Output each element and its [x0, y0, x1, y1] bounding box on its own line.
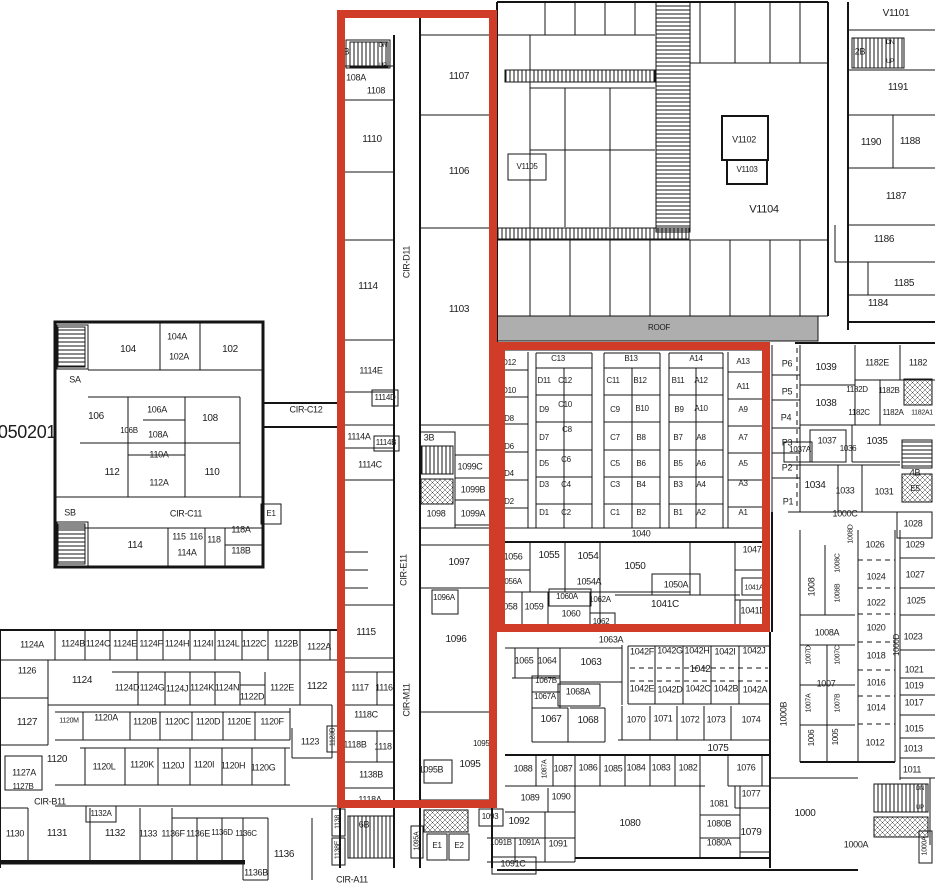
room-label-cir-c11: CIR-C11 — [170, 510, 202, 519]
room-label-1122c: 1122C — [242, 640, 266, 649]
room-label-1138e: 1138E — [335, 841, 342, 859]
room-label-c7: C7 — [610, 434, 620, 442]
room-label-1136: 1136 — [274, 850, 294, 860]
room-label-1007d: 1007D — [806, 645, 813, 664]
room-label-1035: 1035 — [866, 437, 887, 447]
room-label-c1: C1 — [610, 509, 620, 517]
room-label-a5: A5 — [738, 460, 747, 468]
room-label-108a: 108A — [148, 431, 168, 440]
room-label-1124d: 1124D — [115, 684, 139, 693]
room-label-1041c: 1041C — [651, 600, 679, 610]
room-label-1091: 1091 — [549, 840, 568, 849]
room-label-1124: 1124 — [72, 676, 92, 686]
room-label-b13: B13 — [624, 355, 637, 363]
room-label-1095b: 1095B — [419, 766, 444, 775]
room-label-b8: B8 — [636, 434, 645, 442]
room-label-1110: 1110 — [362, 135, 382, 145]
room-label-1132a: 1132A — [90, 810, 111, 818]
room-label-1015: 1015 — [905, 725, 924, 734]
room-label-1034: 1034 — [804, 481, 825, 491]
room-label-1114b: 1114B — [376, 439, 396, 447]
room-label-104a: 104A — [167, 333, 187, 342]
room-label-1191: 1191 — [888, 83, 908, 93]
room-label-1031: 1031 — [875, 488, 894, 497]
room-labels-layer: 050201ROOFSA104104A102A102106106A106B108… — [0, 0, 935, 883]
room-label-1118a: 1118A — [358, 796, 381, 805]
room-label-1005: 1005 — [832, 729, 840, 746]
room-label-b2: B2 — [636, 509, 645, 517]
room-label-roof: ROOF — [648, 324, 670, 332]
room-label-1186: 1186 — [874, 235, 894, 245]
room-label-1114d: 1114D — [375, 394, 396, 402]
room-label-1120b: 1120B — [133, 718, 157, 727]
room-label-1074: 1074 — [742, 716, 761, 725]
room-label-a8: A8 — [696, 434, 705, 442]
room-label-1019: 1019 — [905, 682, 924, 691]
room-label-1093: 1093 — [482, 813, 499, 821]
room-label-118: 118 — [207, 536, 220, 545]
room-label-b5: B5 — [673, 460, 682, 468]
room-label-b10: B10 — [635, 405, 648, 413]
room-label-b4: B4 — [636, 481, 645, 489]
room-label-112a: 112A — [149, 479, 168, 488]
room-label-1138: 1138 — [335, 815, 342, 829]
room-label-1182: 1182 — [909, 359, 927, 368]
room-label-a13: A13 — [736, 358, 749, 366]
room-label-050201: 050201 — [0, 423, 56, 441]
room-label-a1: A1 — [738, 509, 747, 517]
room-label-1080a: 1080A — [707, 839, 732, 848]
room-label-1042b: 1042B — [714, 685, 739, 694]
room-label-1131: 1131 — [47, 829, 67, 839]
room-label-1067: 1067 — [540, 715, 561, 725]
room-label-d3: D3 — [539, 481, 549, 489]
room-label-v1102: V1102 — [732, 136, 756, 145]
room-label-115: 115 — [172, 533, 185, 542]
room-label-1182a: 1182A — [882, 409, 903, 417]
room-label-c10: C10 — [558, 401, 572, 409]
room-label-1124e: 1124E — [113, 640, 137, 649]
room-label-1013: 1013 — [904, 745, 923, 754]
room-label-1033: 1033 — [836, 487, 855, 496]
room-label-1037a: 1037A — [789, 446, 811, 454]
room-label-a12: A12 — [694, 377, 707, 385]
room-label-1008a: 1008A — [815, 629, 840, 638]
room-label-3b: 3B — [424, 434, 434, 443]
room-label-1000b: 1000B — [780, 702, 789, 727]
room-label-1039: 1039 — [815, 363, 836, 373]
room-label-1060a: 1060A — [556, 593, 578, 601]
room-label-1007: 1007 — [817, 680, 836, 689]
room-label-6b: 6B — [359, 821, 369, 830]
room-label-1122a: 1122A — [307, 643, 331, 652]
room-label-a9: A9 — [738, 406, 747, 414]
room-label-116: 116 — [189, 533, 202, 542]
room-label-1127: 1127 — [17, 718, 37, 728]
room-label-1118c: 1118C — [354, 711, 378, 720]
room-label-c6: C6 — [561, 456, 571, 464]
room-label-1099b: 1099B — [461, 486, 486, 495]
room-label-dn: DN — [916, 786, 924, 792]
room-label-1076: 1076 — [737, 764, 756, 773]
room-label-1095c: 1095C — [473, 740, 495, 748]
room-label-1029: 1029 — [906, 541, 925, 550]
room-label-1087: 1087 — [554, 765, 573, 774]
room-label-1127a: 1127A — [12, 769, 36, 778]
room-label-1097: 1097 — [448, 558, 469, 568]
room-label-1120l: 1120L — [93, 763, 116, 772]
room-label-cir-c12: CIR-C12 — [290, 406, 323, 415]
room-label-1008c: 1008C — [835, 553, 842, 572]
room-label-1124k: 1124K — [190, 684, 214, 693]
room-label-1067a: 1067A — [534, 693, 556, 701]
room-label-1120d: 1120D — [196, 718, 220, 727]
room-label-1040: 1040 — [632, 530, 651, 539]
room-label-1124n: 1124N — [215, 684, 239, 693]
room-label-1075: 1075 — [707, 744, 728, 754]
room-label-1021: 1021 — [905, 666, 924, 675]
room-label-1063a: 1063A — [599, 636, 624, 645]
room-label-1103: 1103 — [449, 305, 469, 315]
room-label-1127b: 1127B — [12, 783, 33, 791]
room-label-1054: 1054 — [577, 552, 598, 562]
room-label-106: 106 — [88, 412, 104, 422]
room-label-1000: 1000 — [794, 809, 815, 819]
room-label-e5: E5 — [910, 485, 919, 493]
room-label-1060: 1060 — [562, 610, 581, 619]
room-label-1098: 1098 — [427, 510, 446, 519]
room-label-dn: DN — [886, 40, 894, 46]
room-label-e1: E1 — [266, 510, 275, 518]
room-label-1120g: 1120G — [251, 764, 276, 773]
room-label-1117: 1117 — [351, 684, 369, 693]
room-label-d12: D12 — [502, 359, 516, 367]
room-label-1114: 1114 — [358, 282, 378, 292]
room-label-1073: 1073 — [707, 716, 726, 725]
room-label-1184: 1184 — [868, 299, 888, 309]
room-label-1118b: 1118B — [343, 741, 366, 750]
room-label-1056: 1056 — [504, 553, 523, 562]
room-label-1118: 1118 — [374, 743, 392, 752]
room-label-1096a: 1096A — [433, 594, 455, 602]
room-label-c3: C3 — [610, 481, 620, 489]
room-label-1088: 1088 — [514, 765, 533, 774]
room-label-118a: 118A — [231, 526, 250, 535]
room-label-1122b: 1122B — [274, 640, 298, 649]
room-label-1055: 1055 — [538, 551, 559, 561]
room-label-a14: A14 — [689, 355, 702, 363]
room-label-114a: 114A — [177, 549, 196, 558]
room-label-d1: D1 — [539, 509, 549, 517]
room-label-1064: 1064 — [538, 657, 557, 666]
room-label-c11: C11 — [606, 377, 619, 385]
floor-plan: 050201ROOFSA104104A102A102106106A106B108… — [0, 0, 935, 883]
room-label-1087a: 1087A — [542, 760, 549, 779]
room-label-1082: 1082 — [679, 764, 698, 773]
room-label-d5: D5 — [539, 460, 549, 468]
room-label-1041a: 1041A — [745, 585, 764, 592]
room-label-b11: B11 — [672, 377, 685, 385]
room-label-a4: A4 — [696, 481, 705, 489]
room-label-c5: C5 — [610, 460, 620, 468]
room-label-cir-e11: CIR-E11 — [400, 554, 409, 586]
room-label-106b: 106B — [120, 427, 137, 435]
room-label-1081: 1081 — [710, 800, 729, 809]
room-label-1106: 1106 — [449, 167, 469, 177]
room-label-1059: 1059 — [525, 603, 544, 612]
room-label-1025: 1025 — [907, 597, 926, 606]
room-label-cir-m11: CIR-M11 — [403, 683, 412, 716]
room-label-c9: C9 — [610, 406, 620, 414]
room-label-1114c: 1114C — [358, 461, 382, 470]
room-label-v1104: V1104 — [749, 205, 779, 216]
room-label-1023: 1023 — [904, 633, 923, 642]
room-label-1047: 1047 — [743, 546, 762, 555]
room-label-1124c: 1124C — [86, 640, 110, 649]
room-label-1080b: 1080B — [707, 820, 732, 829]
room-label-1120k: 1120K — [130, 761, 154, 770]
room-label-1136f: 1136F — [161, 830, 184, 839]
room-label-4b: 4B — [910, 469, 920, 478]
room-label-1136b: 1136B — [244, 869, 268, 878]
room-label-1114a: 1114A — [347, 433, 370, 442]
room-label-1120c: 1120C — [165, 718, 189, 727]
room-label-1042e: 1042E — [630, 685, 655, 694]
room-label-108a: 108A — [346, 74, 366, 83]
room-label-1120m: 1120M — [59, 718, 78, 725]
room-label-1022: 1022 — [867, 599, 886, 608]
room-label-1136e: 1136E — [186, 830, 210, 839]
room-label-c4: C4 — [561, 481, 571, 489]
room-label-dn: DN — [379, 43, 387, 49]
room-label-d6: D6 — [504, 443, 514, 451]
room-label-1096: 1096 — [445, 635, 466, 645]
room-label-v1103: V1103 — [736, 166, 757, 174]
room-label-110a: 110A — [149, 451, 168, 460]
room-label-1065: 1065 — [515, 657, 534, 666]
room-label-1136c: 1136C — [235, 830, 256, 838]
room-label-1182b: 1182B — [878, 387, 899, 395]
room-label-1077: 1077 — [742, 790, 761, 799]
room-label-1068: 1068 — [577, 716, 598, 726]
room-label-1079: 1079 — [740, 828, 761, 838]
room-label-1028: 1028 — [904, 520, 923, 529]
room-label-b1: B1 — [673, 509, 682, 517]
room-label-p1: P1 — [783, 498, 793, 507]
room-label-1124b: 1124B — [61, 640, 85, 649]
room-label-1115: 1115 — [356, 628, 376, 638]
room-label-1042: 1042 — [689, 665, 710, 675]
room-label-1130: 1130 — [6, 830, 24, 839]
room-label-1099a: 1099A — [461, 510, 486, 519]
room-label-b7: B7 — [673, 434, 682, 442]
room-label-1007c: 1007C — [835, 645, 842, 664]
room-label-1063: 1063 — [580, 658, 601, 668]
room-label-c8: C8 — [562, 426, 572, 434]
room-label-p2: P2 — [782, 464, 792, 473]
room-label-1120j: 1120J — [162, 762, 184, 771]
room-label-112: 112 — [104, 468, 119, 478]
room-label-1138b: 1138B — [359, 771, 383, 780]
room-label-1123b: 1123B — [330, 728, 337, 746]
room-label-1007a: 1007A — [806, 694, 813, 713]
room-label-1008b: 1008B — [835, 584, 842, 603]
room-label-1120f: 1120F — [260, 718, 283, 727]
room-label-b3: B3 — [673, 481, 682, 489]
room-label-b12: B12 — [633, 377, 646, 385]
room-label-sa: SA — [69, 376, 80, 385]
room-label-1116: 1116 — [375, 684, 393, 693]
room-label-a2: A2 — [696, 509, 705, 517]
room-label-d8: D8 — [504, 415, 514, 423]
room-label-cir-a11: CIR-A11 — [336, 876, 368, 883]
room-label-1007b: 1007B — [835, 694, 842, 713]
room-label-v1105: V1105 — [516, 163, 537, 171]
room-label-p6: P6 — [782, 360, 792, 369]
room-label-108: 108 — [202, 414, 218, 424]
room-label-sb: SB — [64, 509, 75, 518]
room-label-1095a: 1095A — [414, 832, 421, 851]
room-label-1041d: 1041D — [740, 607, 765, 616]
room-label-1042g: 1042G — [657, 647, 683, 656]
room-label-1027: 1027 — [906, 571, 925, 580]
room-label-c13: C13 — [551, 355, 565, 363]
room-label-1124i: 1124I — [193, 640, 213, 649]
room-label-1122: 1122 — [307, 682, 327, 692]
room-label-1012: 1012 — [866, 739, 885, 748]
room-label-1008d: 1008D — [848, 524, 855, 543]
room-label-v1101: V1101 — [883, 9, 910, 19]
room-label-102a: 102A — [169, 353, 189, 362]
room-label-1091c: 1091C — [500, 860, 525, 869]
room-label-1062a: 1062A — [589, 596, 611, 604]
room-label-1085: 1085 — [604, 765, 623, 774]
room-label-1091a: 1091A — [518, 839, 540, 847]
room-label-1086: 1086 — [579, 764, 598, 773]
room-label-d10: D10 — [502, 387, 516, 395]
room-label-c2: C2 — [561, 509, 571, 517]
room-label-a7: A7 — [738, 434, 747, 442]
room-label-1083: 1083 — [652, 764, 671, 773]
room-label-up: UP — [916, 805, 924, 811]
room-label-1120: 1120 — [47, 755, 67, 765]
room-label-102: 102 — [222, 345, 238, 355]
room-label-cir-b11: CIR-B11 — [34, 798, 66, 807]
room-label-1067b: 1067B — [535, 677, 557, 685]
room-label-1072: 1072 — [681, 716, 700, 725]
room-label-1095: 1095 — [459, 760, 480, 770]
room-label-e2: E2 — [454, 842, 463, 850]
room-label-1136d: 1136D — [211, 829, 232, 837]
room-label-a11: A11 — [737, 383, 750, 391]
room-label-1107: 1107 — [449, 72, 469, 82]
room-label-1008: 1008 — [808, 578, 817, 597]
room-label-2b: 2B — [855, 48, 865, 57]
room-label-1124g: 1124G — [140, 684, 165, 693]
room-label-1070: 1070 — [627, 716, 646, 725]
room-label-1071: 1071 — [654, 715, 673, 724]
room-label-1182d: 1182D — [846, 386, 867, 394]
room-label-1050: 1050 — [624, 562, 645, 572]
room-label-1099c: 1099C — [457, 463, 482, 472]
room-label-104: 104 — [120, 345, 136, 355]
room-label-1132: 1132 — [105, 829, 125, 839]
room-label-d2: D2 — [504, 498, 514, 506]
room-label-1038: 1038 — [815, 399, 836, 409]
room-label-1123: 1123 — [301, 738, 319, 747]
room-label-1042a: 1042A — [743, 686, 768, 695]
room-label-1092: 1092 — [508, 817, 529, 827]
room-label-1000a: 1000A — [844, 841, 869, 850]
room-label-1124f: 1124F — [139, 640, 162, 649]
room-label-1042f: 1042F — [630, 648, 654, 657]
room-label-1120a: 1120A — [94, 714, 118, 723]
room-label-1054a: 1054A — [577, 578, 602, 587]
room-label-1122d: 1122D — [240, 693, 264, 702]
room-label-1068a: 1068A — [566, 688, 591, 697]
room-label-up: UP — [886, 59, 894, 65]
room-label-p4: P4 — [781, 414, 791, 423]
room-label-1050a: 1050A — [664, 581, 689, 590]
room-label-1089: 1089 — [521, 794, 540, 803]
room-label-b9: B9 — [674, 406, 683, 414]
room-label-1182c: 1182C — [848, 409, 869, 417]
room-label-1058: 1058 — [499, 603, 518, 612]
room-label-1000c: 1000C — [832, 510, 857, 519]
room-label-1188: 1188 — [900, 137, 920, 147]
room-label-1182a1: 1182A1 — [911, 410, 933, 417]
room-label-1016: 1016 — [867, 679, 886, 688]
room-label-p5: P5 — [782, 388, 792, 397]
room-label-d11: D11 — [537, 377, 550, 385]
room-label-1126: 1126 — [18, 667, 36, 676]
room-label-1120e: 1120E — [227, 718, 251, 727]
room-label-1037: 1037 — [818, 437, 837, 446]
room-label-1014: 1014 — [867, 704, 886, 713]
room-label-1011: 1011 — [903, 766, 921, 775]
room-label-1020: 1020 — [867, 624, 886, 633]
room-label-118b: 118B — [231, 547, 250, 556]
room-label-114: 114 — [127, 541, 142, 551]
room-label-b6: B6 — [636, 460, 645, 468]
room-label-c12: C12 — [558, 377, 572, 385]
room-label-1190: 1190 — [861, 138, 881, 148]
room-label-d7: D7 — [539, 434, 549, 442]
room-label-1122e: 1122E — [270, 684, 294, 693]
room-label-d9: D9 — [539, 406, 549, 414]
room-label-1042c: 1042C — [685, 685, 710, 694]
room-label-1017: 1017 — [905, 699, 924, 708]
room-label-1187: 1187 — [886, 192, 906, 202]
room-label-up: UP — [379, 63, 387, 69]
room-label-1108: 1108 — [367, 87, 385, 96]
room-label-1133: 1133 — [139, 830, 157, 839]
room-label-1056a: 1056A — [500, 578, 522, 586]
room-label-a10: A10 — [694, 405, 707, 413]
room-label-1185: 1185 — [894, 279, 914, 289]
room-label-1024: 1024 — [867, 573, 886, 582]
room-label-1120h: 1120H — [221, 762, 245, 771]
room-label-106a: 106A — [147, 406, 167, 415]
room-label-1120i: 1120I — [194, 761, 214, 770]
room-label-1000d: 1000D — [893, 634, 901, 656]
room-label-a6: A6 — [696, 460, 705, 468]
room-label-1042h: 1042H — [684, 647, 709, 656]
room-label-1182e: 1182E — [865, 359, 889, 368]
room-label-1006: 1006 — [808, 730, 816, 747]
room-label-1080: 1080 — [619, 819, 640, 829]
room-label-1018: 1018 — [867, 652, 886, 661]
